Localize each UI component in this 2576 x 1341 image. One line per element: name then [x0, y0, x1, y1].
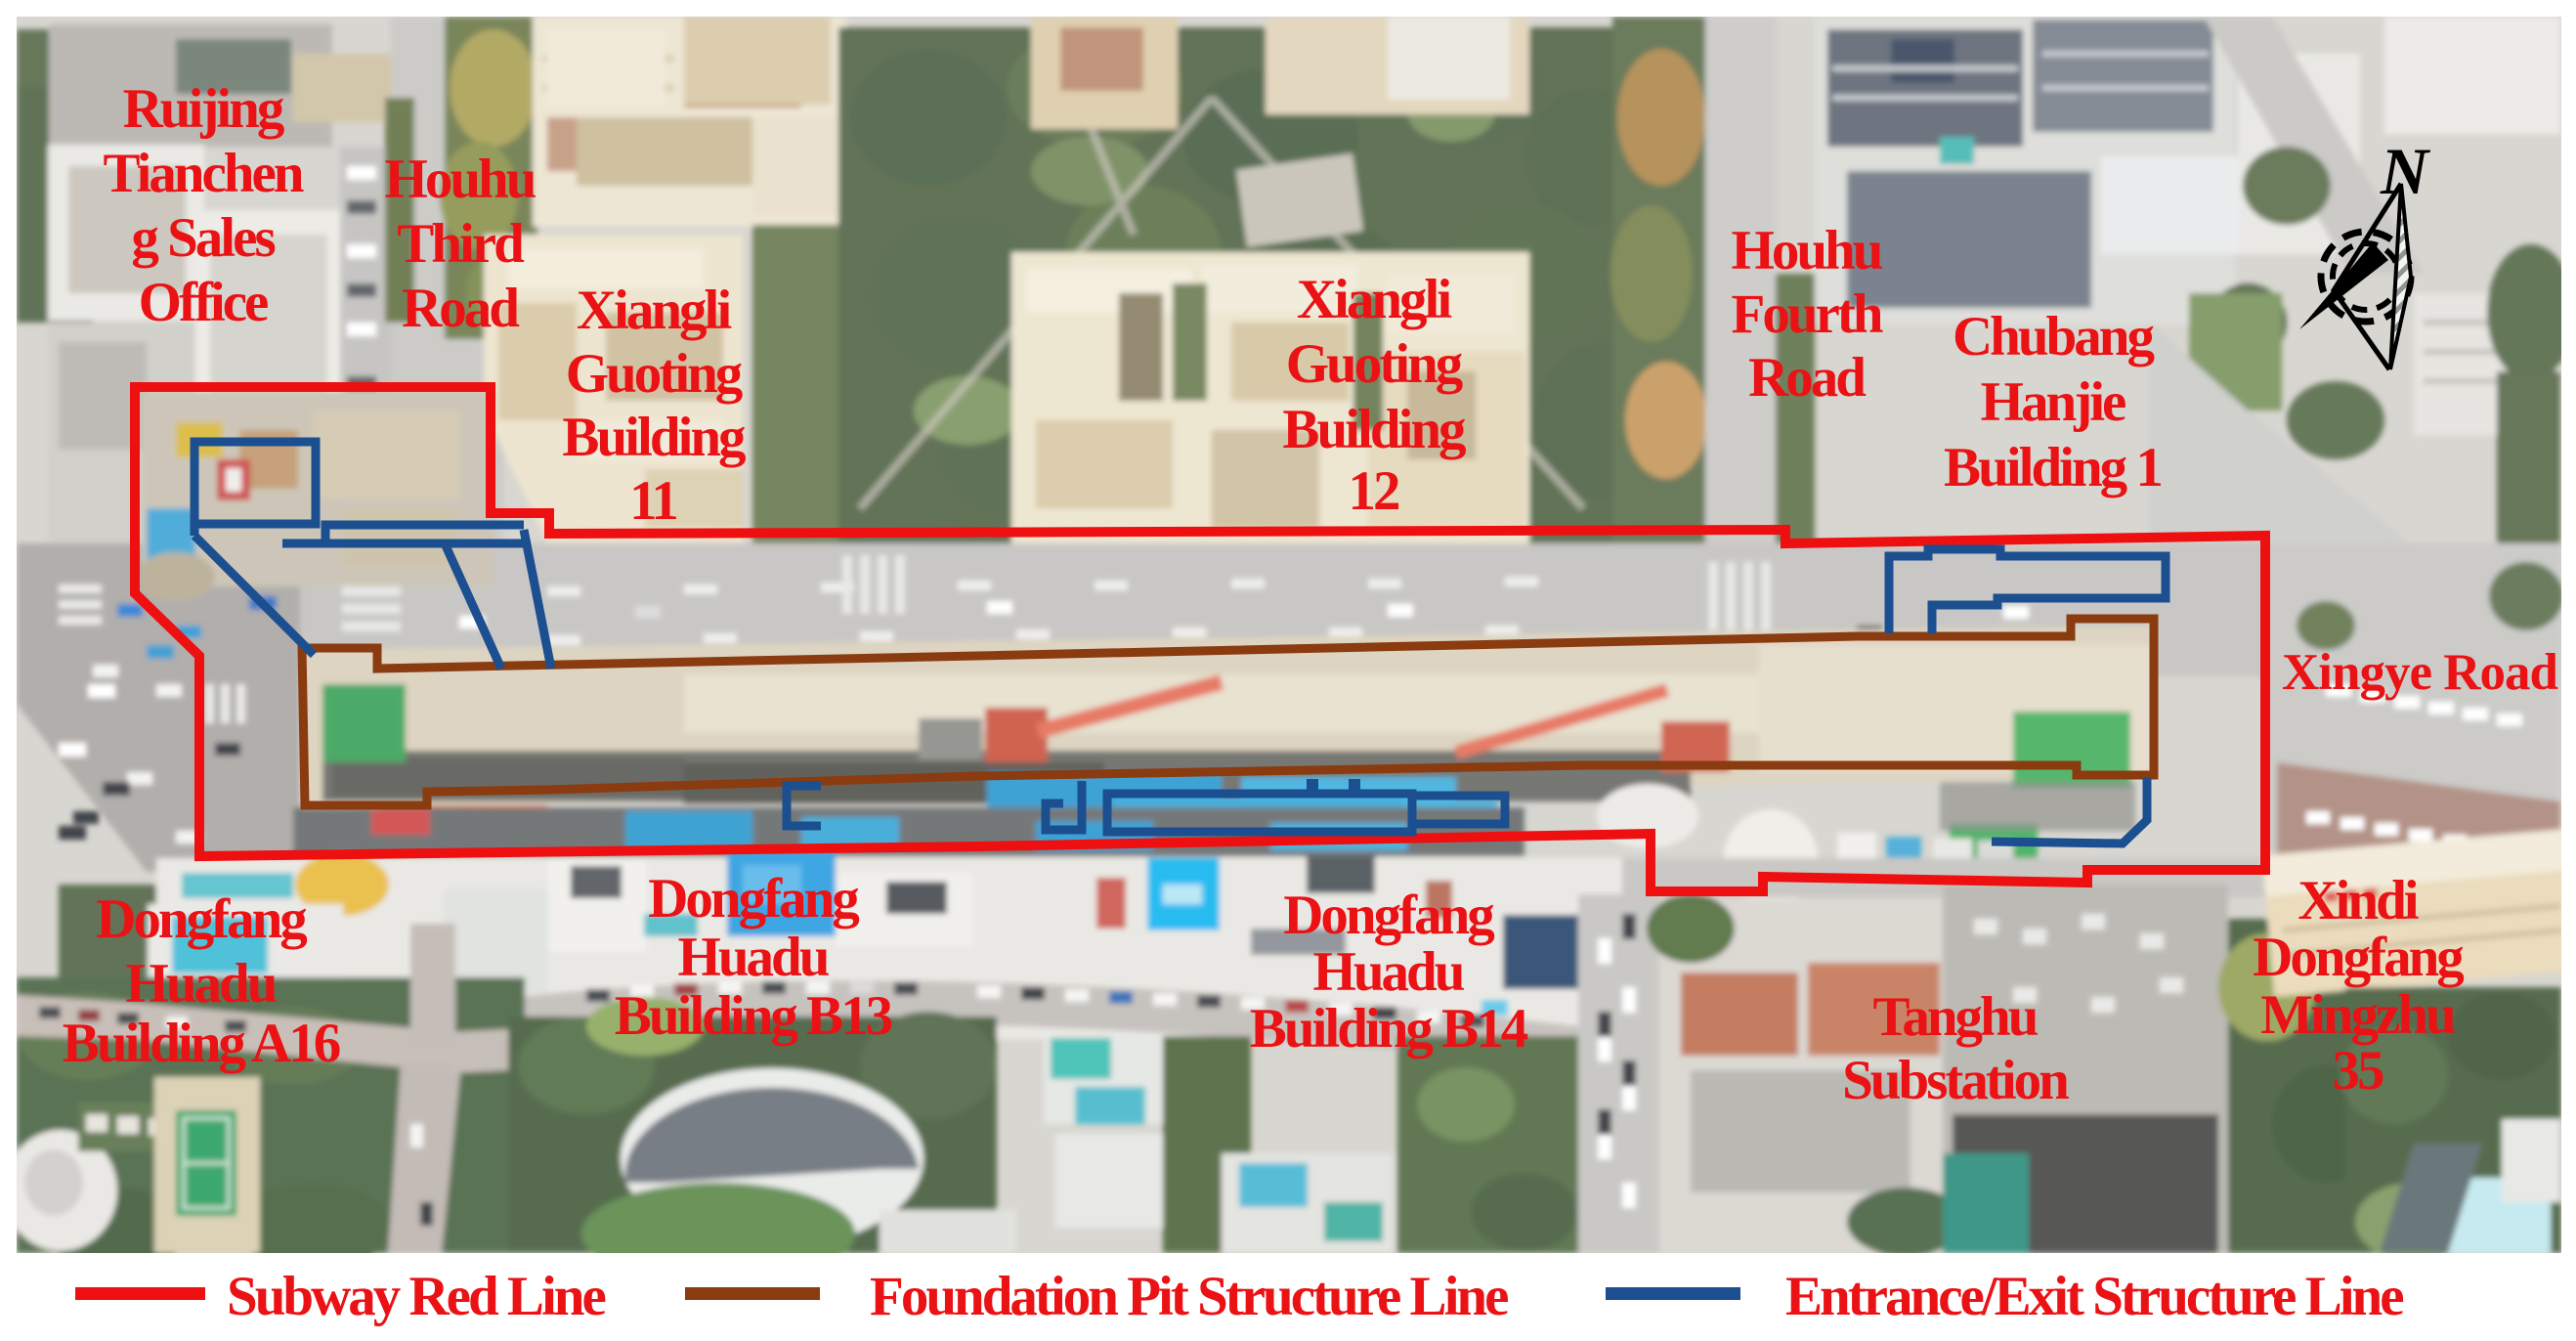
svg-text:Ruijing: Ruijing: [123, 78, 284, 140]
svg-text:35: 35: [2333, 1040, 2384, 1102]
svg-text:Building 1: Building 1: [1944, 437, 2161, 498]
svg-text:Chubang: Chubang: [1953, 306, 2154, 368]
svg-text:Xingye Road: Xingye Road: [2282, 644, 2558, 701]
svg-text:Houhu: Houhu: [385, 149, 537, 210]
svg-text:Entrance/Exit Structure Line: Entrance/Exit Structure Line: [1785, 1266, 2403, 1327]
svg-text:Road: Road: [402, 278, 520, 339]
svg-text:Xiangli: Xiangli: [577, 280, 732, 341]
svg-text:Office: Office: [139, 272, 268, 333]
svg-text:Road: Road: [1748, 347, 1867, 409]
svg-text:N: N: [2380, 134, 2431, 208]
svg-text:Huadu: Huadu: [126, 953, 278, 1015]
svg-text:Building A16: Building A16: [63, 1013, 340, 1074]
svg-text:11: 11: [629, 470, 676, 532]
svg-text:Dongfang: Dongfang: [96, 888, 307, 950]
svg-text:Building B13: Building B13: [615, 985, 892, 1047]
svg-text:Xindi: Xindi: [2297, 870, 2418, 931]
svg-text:Third: Third: [397, 213, 525, 275]
svg-text:Dongfang: Dongfang: [648, 868, 859, 930]
svg-text:Huadu: Huadu: [1313, 941, 1465, 1003]
svg-text:Substation: Substation: [1842, 1050, 2069, 1111]
svg-text:Huadu: Huadu: [678, 927, 830, 988]
svg-text:Tanghu: Tanghu: [1873, 986, 2039, 1048]
svg-text:Hanjie: Hanjie: [1981, 371, 2125, 433]
svg-text:Guoting: Guoting: [1286, 333, 1463, 395]
svg-text:Tianchen: Tianchen: [103, 143, 303, 204]
svg-text:g Sales: g Sales: [131, 207, 275, 269]
svg-text:Xiangli: Xiangli: [1297, 269, 1452, 330]
svg-text:Subway Red Line: Subway Red Line: [227, 1266, 605, 1327]
svg-text:Dongfang: Dongfang: [1283, 885, 1494, 946]
svg-text:Guoting: Guoting: [566, 343, 743, 405]
svg-text:Building: Building: [562, 407, 746, 468]
svg-text:Fourth: Fourth: [1732, 283, 1883, 345]
svg-text:Building B14: Building B14: [1250, 998, 1528, 1060]
svg-text:Foundation Pit Structure Line: Foundation Pit Structure Line: [870, 1266, 1508, 1327]
svg-text:Building: Building: [1282, 399, 1466, 460]
svg-text:Dongfang: Dongfang: [2253, 927, 2464, 988]
svg-text:Houhu: Houhu: [1732, 220, 1883, 281]
svg-text:12: 12: [1349, 460, 1400, 522]
svg-text:Mingzhu: Mingzhu: [2260, 984, 2456, 1046]
